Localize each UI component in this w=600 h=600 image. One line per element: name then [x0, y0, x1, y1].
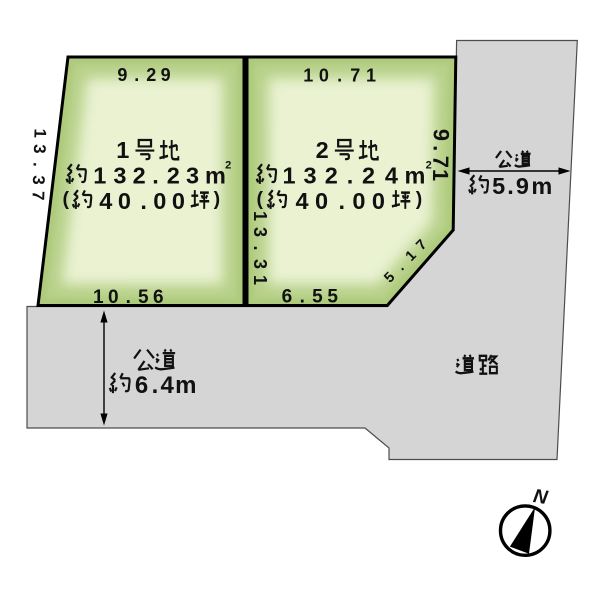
svg-text:.: .	[152, 163, 159, 189]
svg-text:2: 2	[225, 159, 231, 171]
svg-text:2: 2	[426, 159, 432, 171]
svg-text:6: 6	[282, 287, 293, 308]
svg-text:1: 1	[250, 275, 270, 285]
svg-text:0: 0	[352, 188, 365, 214]
svg-text:0: 0	[118, 188, 131, 214]
svg-text:5: 5	[312, 287, 323, 308]
svg-text:0: 0	[108, 287, 119, 308]
svg-text:.: .	[300, 287, 305, 308]
svg-text:.: .	[134, 65, 139, 85]
svg-text:.: .	[428, 145, 453, 152]
svg-text:m: m	[175, 372, 196, 399]
svg-text:(: (	[257, 188, 264, 210]
svg-text:0: 0	[172, 188, 185, 214]
svg-text:.: .	[250, 245, 270, 250]
svg-text:(: (	[63, 188, 70, 210]
svg-text:2: 2	[133, 163, 146, 189]
svg-text:7: 7	[28, 191, 47, 201]
svg-text:.: .	[507, 173, 514, 199]
svg-text:): )	[416, 188, 423, 210]
svg-text:0: 0	[319, 66, 329, 86]
svg-text:5: 5	[327, 287, 338, 308]
svg-text:3: 3	[250, 227, 270, 237]
svg-text:.: .	[126, 287, 131, 308]
svg-text:.: .	[337, 66, 342, 86]
svg-text:2: 2	[146, 65, 156, 85]
svg-text:.: .	[152, 372, 159, 399]
svg-text:7: 7	[428, 155, 453, 168]
svg-text:1: 1	[30, 128, 49, 138]
svg-text:0: 0	[153, 188, 166, 214]
svg-text:m: m	[205, 163, 226, 189]
svg-text:2: 2	[316, 137, 329, 163]
svg-text:9: 9	[429, 129, 454, 142]
svg-text:7: 7	[350, 66, 360, 86]
svg-text:m: m	[405, 163, 426, 189]
svg-text:5: 5	[492, 173, 505, 199]
svg-text:1: 1	[93, 287, 104, 308]
svg-text:.: .	[339, 188, 346, 214]
svg-text:9: 9	[117, 65, 127, 85]
svg-text:.: .	[347, 163, 354, 189]
svg-text:.: .	[140, 188, 147, 214]
svg-text:2: 2	[167, 163, 180, 189]
svg-text:2: 2	[362, 163, 375, 189]
svg-text:4: 4	[99, 188, 112, 214]
svg-text:5: 5	[138, 287, 149, 308]
svg-text:): )	[214, 188, 221, 210]
svg-text:6: 6	[135, 372, 148, 399]
svg-text:3: 3	[186, 163, 199, 189]
svg-text:1: 1	[366, 66, 376, 86]
svg-text:3: 3	[250, 259, 270, 269]
svg-text:0: 0	[315, 188, 328, 214]
svg-text:4: 4	[385, 163, 398, 189]
svg-text:m: m	[531, 173, 552, 199]
svg-text:9: 9	[516, 173, 529, 199]
svg-text:0: 0	[372, 188, 385, 214]
svg-text:3: 3	[304, 163, 317, 189]
svg-text:1: 1	[250, 211, 270, 221]
svg-text:3: 3	[30, 144, 49, 154]
svg-text:1: 1	[93, 163, 106, 189]
svg-text:2: 2	[325, 163, 338, 189]
svg-text:3: 3	[113, 163, 126, 189]
svg-text:4: 4	[295, 188, 308, 214]
svg-text:3: 3	[29, 175, 48, 185]
svg-text:9: 9	[161, 65, 171, 85]
svg-text:1: 1	[303, 66, 313, 86]
svg-text:1: 1	[116, 137, 129, 163]
svg-text:.: .	[29, 162, 48, 167]
svg-text:6: 6	[153, 287, 164, 308]
svg-text:1: 1	[282, 163, 295, 189]
svg-text:4: 4	[161, 372, 175, 399]
